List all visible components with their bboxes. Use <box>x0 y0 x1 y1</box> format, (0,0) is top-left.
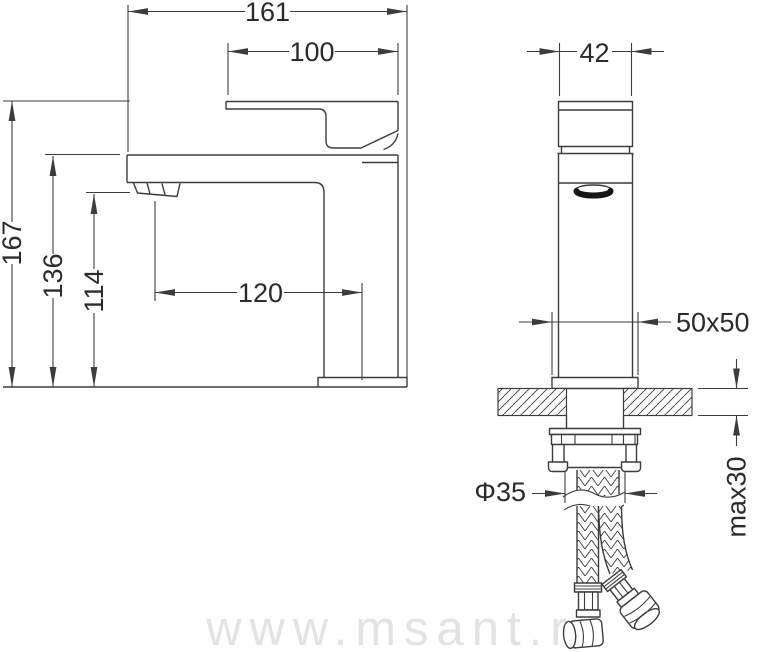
aerator-side <box>134 183 181 197</box>
faucet-side-outline <box>3 102 407 388</box>
dim-label-120: 120 <box>238 278 283 308</box>
watermark-text: www.msant.ru <box>205 602 610 652</box>
aerator-front <box>575 185 613 196</box>
dimension-handle-length: 100 <box>228 37 398 95</box>
dimension-spout-reach: 120 <box>155 201 362 380</box>
dimension-aerator-height: 114 <box>79 193 130 388</box>
front-view: 42 50x50 Φ35 max30 <box>474 38 751 649</box>
dimension-total-length: 161 <box>128 0 407 377</box>
dim-label-100: 100 <box>289 37 334 67</box>
drawing-canvas: www.msant.ru 161 <box>0 0 760 652</box>
dim-label-42: 42 <box>579 38 609 68</box>
faucet-technical-drawing: www.msant.ru 161 <box>0 0 760 652</box>
base-flange-front <box>552 378 638 389</box>
side-view: 161 100 167 136 114 <box>0 0 407 387</box>
mounting-shank <box>567 416 624 429</box>
braided-hoses <box>563 470 633 583</box>
mounting-washer <box>550 429 641 435</box>
dim-label-phi35: Φ35 <box>474 477 526 507</box>
faucet-front-outline <box>498 102 692 649</box>
dim-label-50x50: 50x50 <box>676 308 750 338</box>
countertop-section-right <box>624 389 693 416</box>
dimension-max-thickness: max30 <box>698 359 752 538</box>
dimension-base-plate: 50x50 <box>519 308 750 376</box>
dim-label-136: 136 <box>38 253 68 298</box>
countertop-section-left <box>498 389 567 416</box>
mounting-locknut <box>549 435 641 472</box>
dim-label-114: 114 <box>79 269 109 312</box>
dim-label-167: 167 <box>0 220 27 265</box>
dimension-total-height: 167 <box>0 101 130 387</box>
handle-front <box>559 102 633 147</box>
dim-label-161: 161 <box>245 0 290 27</box>
dimension-body-width: 42 <box>527 38 664 96</box>
dim-label-max30: max30 <box>722 456 752 537</box>
